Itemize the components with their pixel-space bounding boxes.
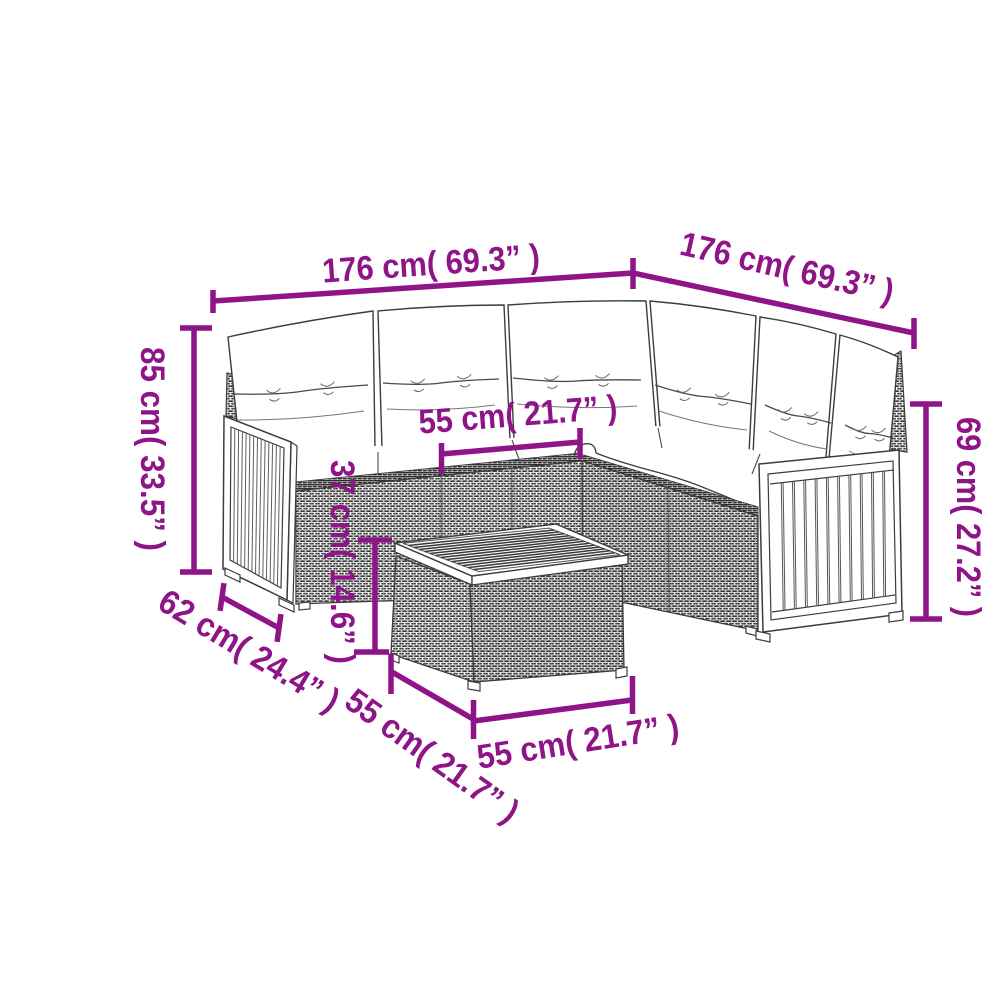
svg-text:37 cm( 14.6” ): 37 cm( 14.6” ) bbox=[323, 460, 361, 664]
svg-text:69 cm( 27.2” ): 69 cm( 27.2” ) bbox=[949, 417, 987, 617]
svg-text:85 cm( 33.5” ): 85 cm( 33.5” ) bbox=[133, 347, 171, 551]
